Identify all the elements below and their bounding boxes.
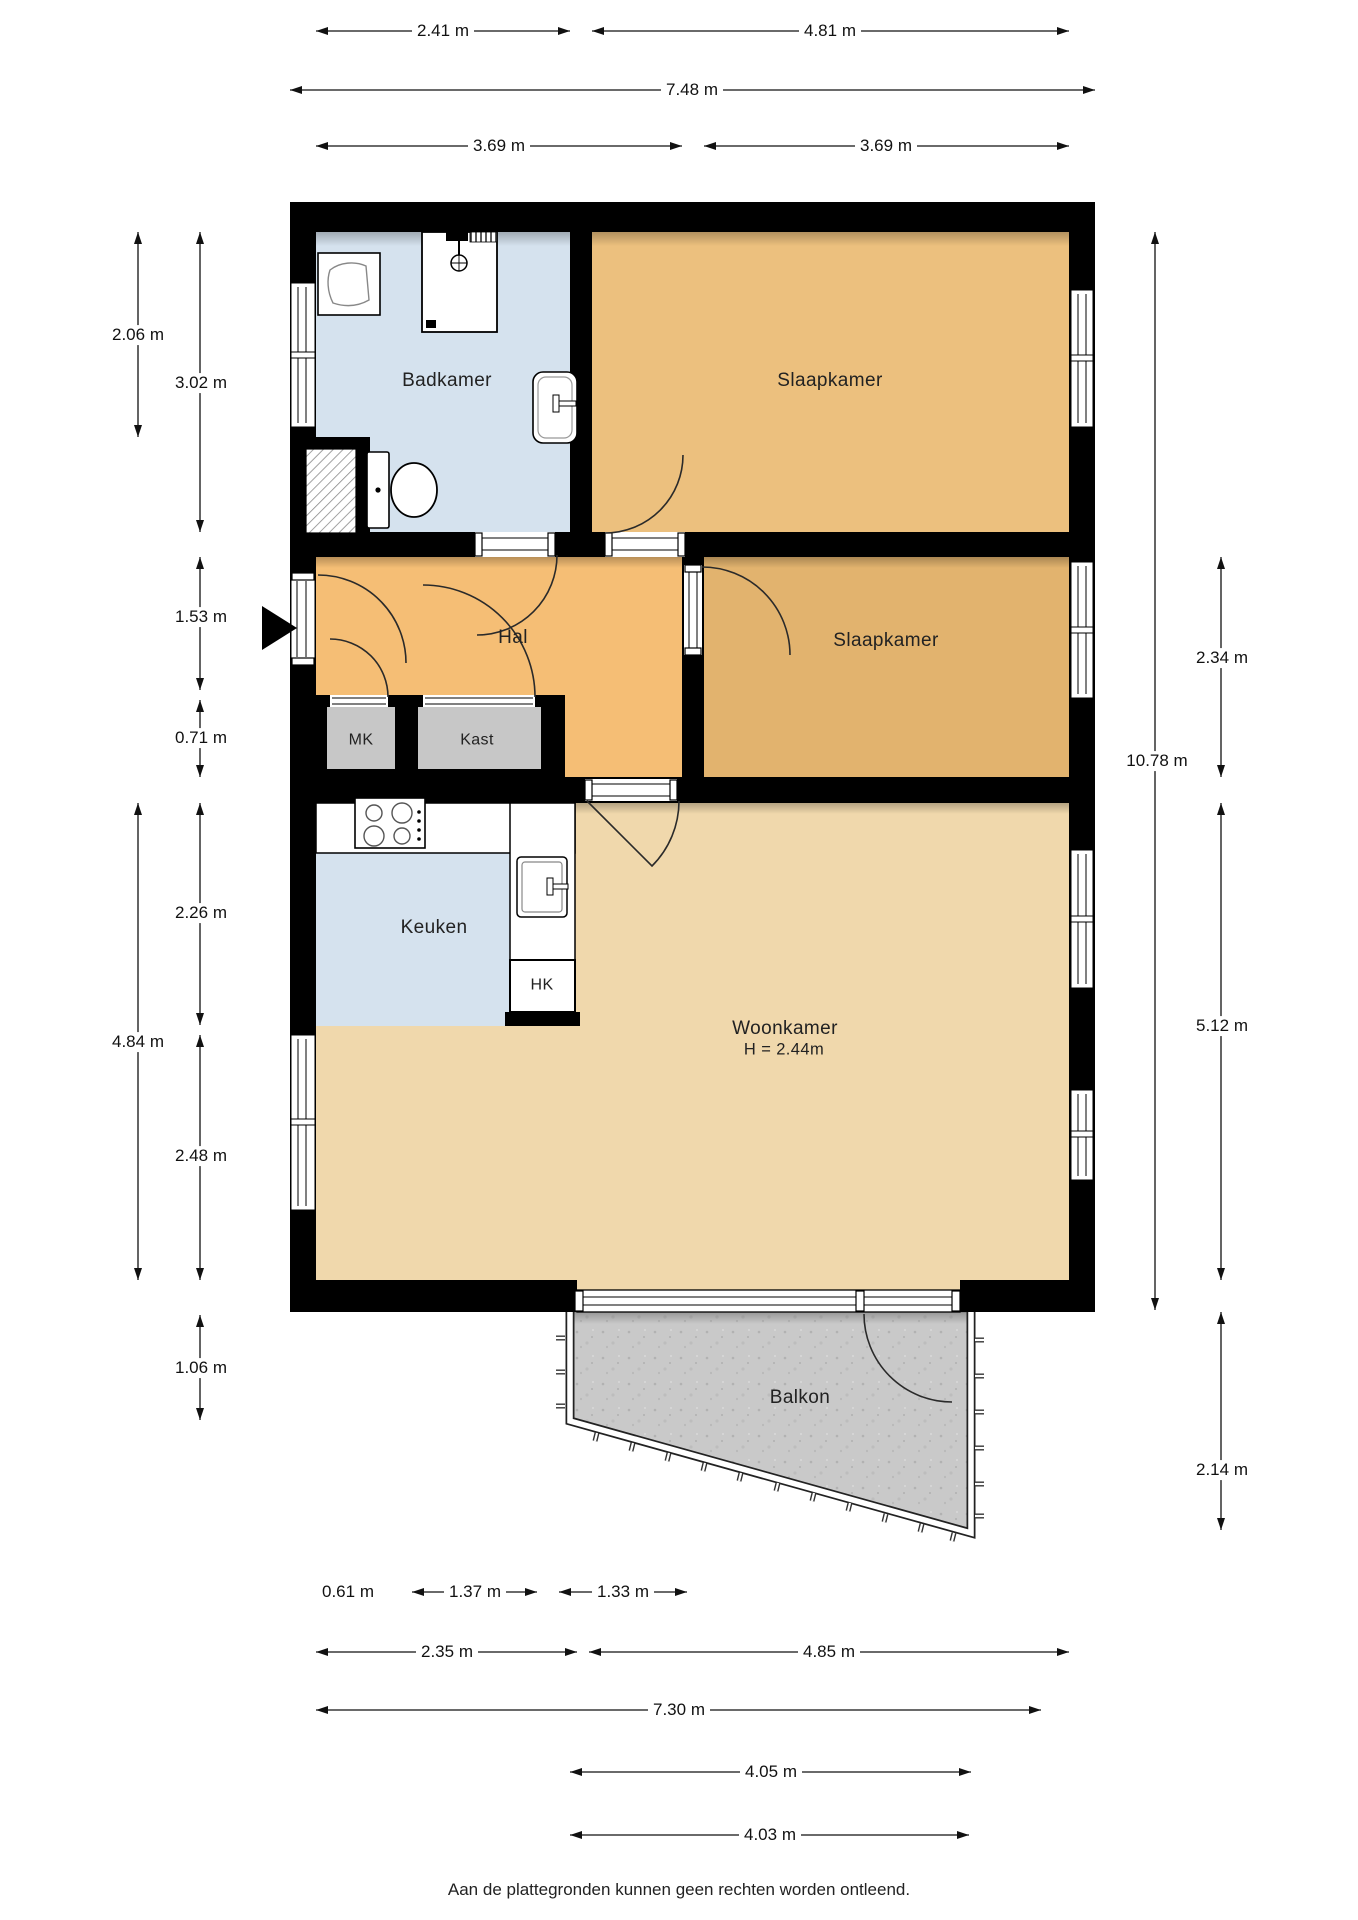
room-label-slaapkamer2: Slaapkamer	[833, 631, 938, 651]
shaft-hatch	[306, 449, 356, 533]
dim-label-top-slaapkamer1: 4.81 m	[799, 21, 861, 41]
room-label-kast: Kast	[460, 733, 494, 750]
dim-label-left-mk: 0.71 m	[170, 728, 232, 748]
window-slaapkamer2-east	[1071, 562, 1093, 698]
floorplan-drawing	[0, 0, 1358, 1920]
dim-label-left-woonkamer: 2.48 m	[170, 1146, 232, 1166]
bathroom-sink-icon	[533, 372, 577, 443]
keuken-floor	[316, 853, 510, 1026]
wall-hk-bottom	[505, 1012, 580, 1026]
room-label-mk: MK	[349, 733, 374, 750]
dim-label-left-badkamer: 3.02 m	[170, 373, 232, 393]
shower-icon	[422, 232, 497, 332]
dim-label-left-hal: 1.53 m	[170, 607, 232, 627]
dim-label-bottom-485: 4.85 m	[798, 1642, 860, 1662]
room-label-keuken: Keuken	[401, 918, 468, 938]
room-label-slaapkamer1: Slaapkamer	[777, 371, 882, 391]
dim-label-bottom-133: 1.33 m	[592, 1582, 654, 1602]
dim-label-bottom-235: 2.35 m	[416, 1642, 478, 1662]
slaapkamer1-door-opening	[605, 532, 685, 557]
washing-machine-icon	[318, 253, 380, 315]
stove-icon	[355, 798, 425, 848]
dim-label-bottom-137: 1.37 m	[444, 1582, 506, 1602]
disclaimer-text: Aan de plattegronden kunnen geen rechten…	[0, 1880, 1358, 1900]
slaapkamer2-door-opening	[684, 565, 702, 655]
wall-south-east	[960, 1280, 1095, 1312]
dim-label-top-total: 7.48 m	[661, 80, 723, 100]
woonkamer-floor-lower	[316, 1026, 1069, 1290]
mk-door-opening	[330, 695, 388, 707]
wall-row-divider	[316, 532, 1069, 557]
kitchen-sink-icon	[517, 857, 568, 917]
window-woonkamer-west	[291, 1035, 315, 1210]
dim-label-right-total: 10.78 m	[1121, 751, 1192, 771]
room-label-woonkamer-height: H = 2.44m	[744, 1041, 824, 1058]
window-woonkamer-east-upper	[1071, 850, 1093, 988]
dim-label-bottom-total: 7.30 m	[648, 1700, 710, 1720]
dim-label-top-badkamer: 2.41 m	[412, 21, 474, 41]
dim-label-right-slaapkamer2: 2.34 m	[1191, 648, 1253, 668]
dim-label-right-woonkamer: 5.12 m	[1191, 1016, 1253, 1036]
floorplan-page: 2.41 m 4.81 m 7.48 m 3.69 m 3.69 m 2.06 …	[0, 0, 1358, 1920]
dim-label-left-lower-total: 4.84 m	[107, 1032, 169, 1052]
window-slaapkamer1-east	[1071, 290, 1093, 427]
window-badkamer-west	[291, 283, 315, 427]
dim-label-top-half-right: 3.69 m	[855, 136, 917, 156]
slaapkamer2-floor	[704, 557, 1069, 777]
dim-label-left-keuken: 2.26 m	[170, 903, 232, 923]
wall-south-west	[290, 1280, 577, 1312]
balkon-floor	[570, 1312, 971, 1533]
dim-label-left-badkamer-window: 2.06 m	[107, 325, 169, 345]
dim-label-bottom-061: 0.61 m	[317, 1582, 379, 1602]
kast-door-opening	[423, 695, 535, 707]
window-woonkamer-east-lower	[1071, 1090, 1093, 1180]
wall-north	[290, 202, 1095, 232]
room-label-badkamer: Badkamer	[402, 371, 492, 391]
balkon	[556, 1312, 984, 1541]
room-label-balkon: Balkon	[770, 1388, 831, 1408]
balkon-sliding-door	[575, 1290, 960, 1312]
entrance-door-opening	[291, 573, 315, 665]
dim-label-right-balkon: 2.14 m	[1191, 1460, 1253, 1480]
woonkamer-floor-right	[575, 803, 1069, 1030]
dim-label-left-balkon: 1.06 m	[170, 1358, 232, 1378]
room-label-hal: Hal	[498, 628, 528, 648]
woonkamer-door-opening	[585, 779, 677, 801]
room-label-hk: HK	[530, 978, 553, 995]
room-label-woonkamer: Woonkamer	[732, 1019, 838, 1039]
badkamer-door-opening	[475, 532, 555, 557]
dim-label-top-half-left: 3.69 m	[468, 136, 530, 156]
dim-label-bottom-balkon-top: 4.05 m	[740, 1762, 802, 1782]
dim-label-bottom-balkon-bottom: 4.03 m	[739, 1825, 801, 1845]
